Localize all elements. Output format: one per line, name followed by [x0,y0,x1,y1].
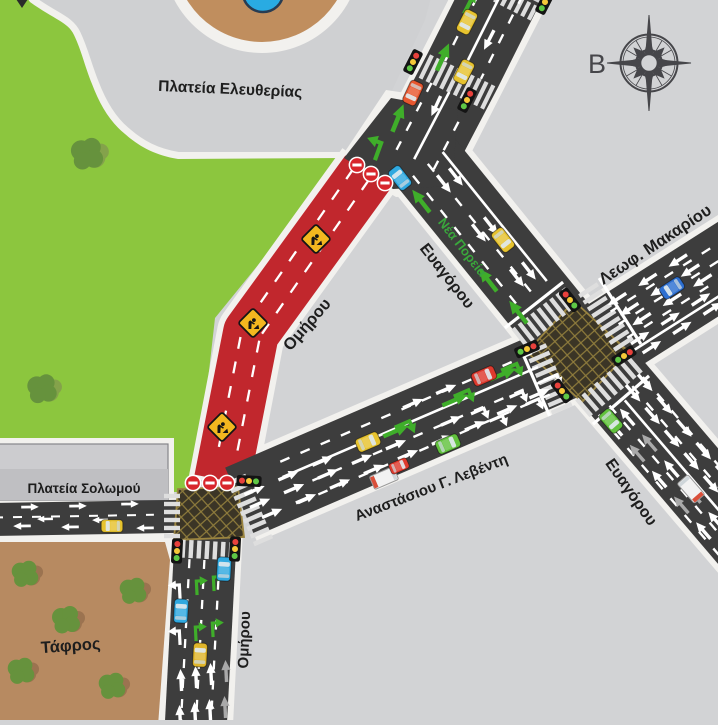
svg-text:Πλατεία Σολωμού: Πλατεία Σολωμού [27,481,140,496]
svg-text:B: B [588,49,606,79]
svg-text:Ομήρου: Ομήρου [235,611,254,669]
